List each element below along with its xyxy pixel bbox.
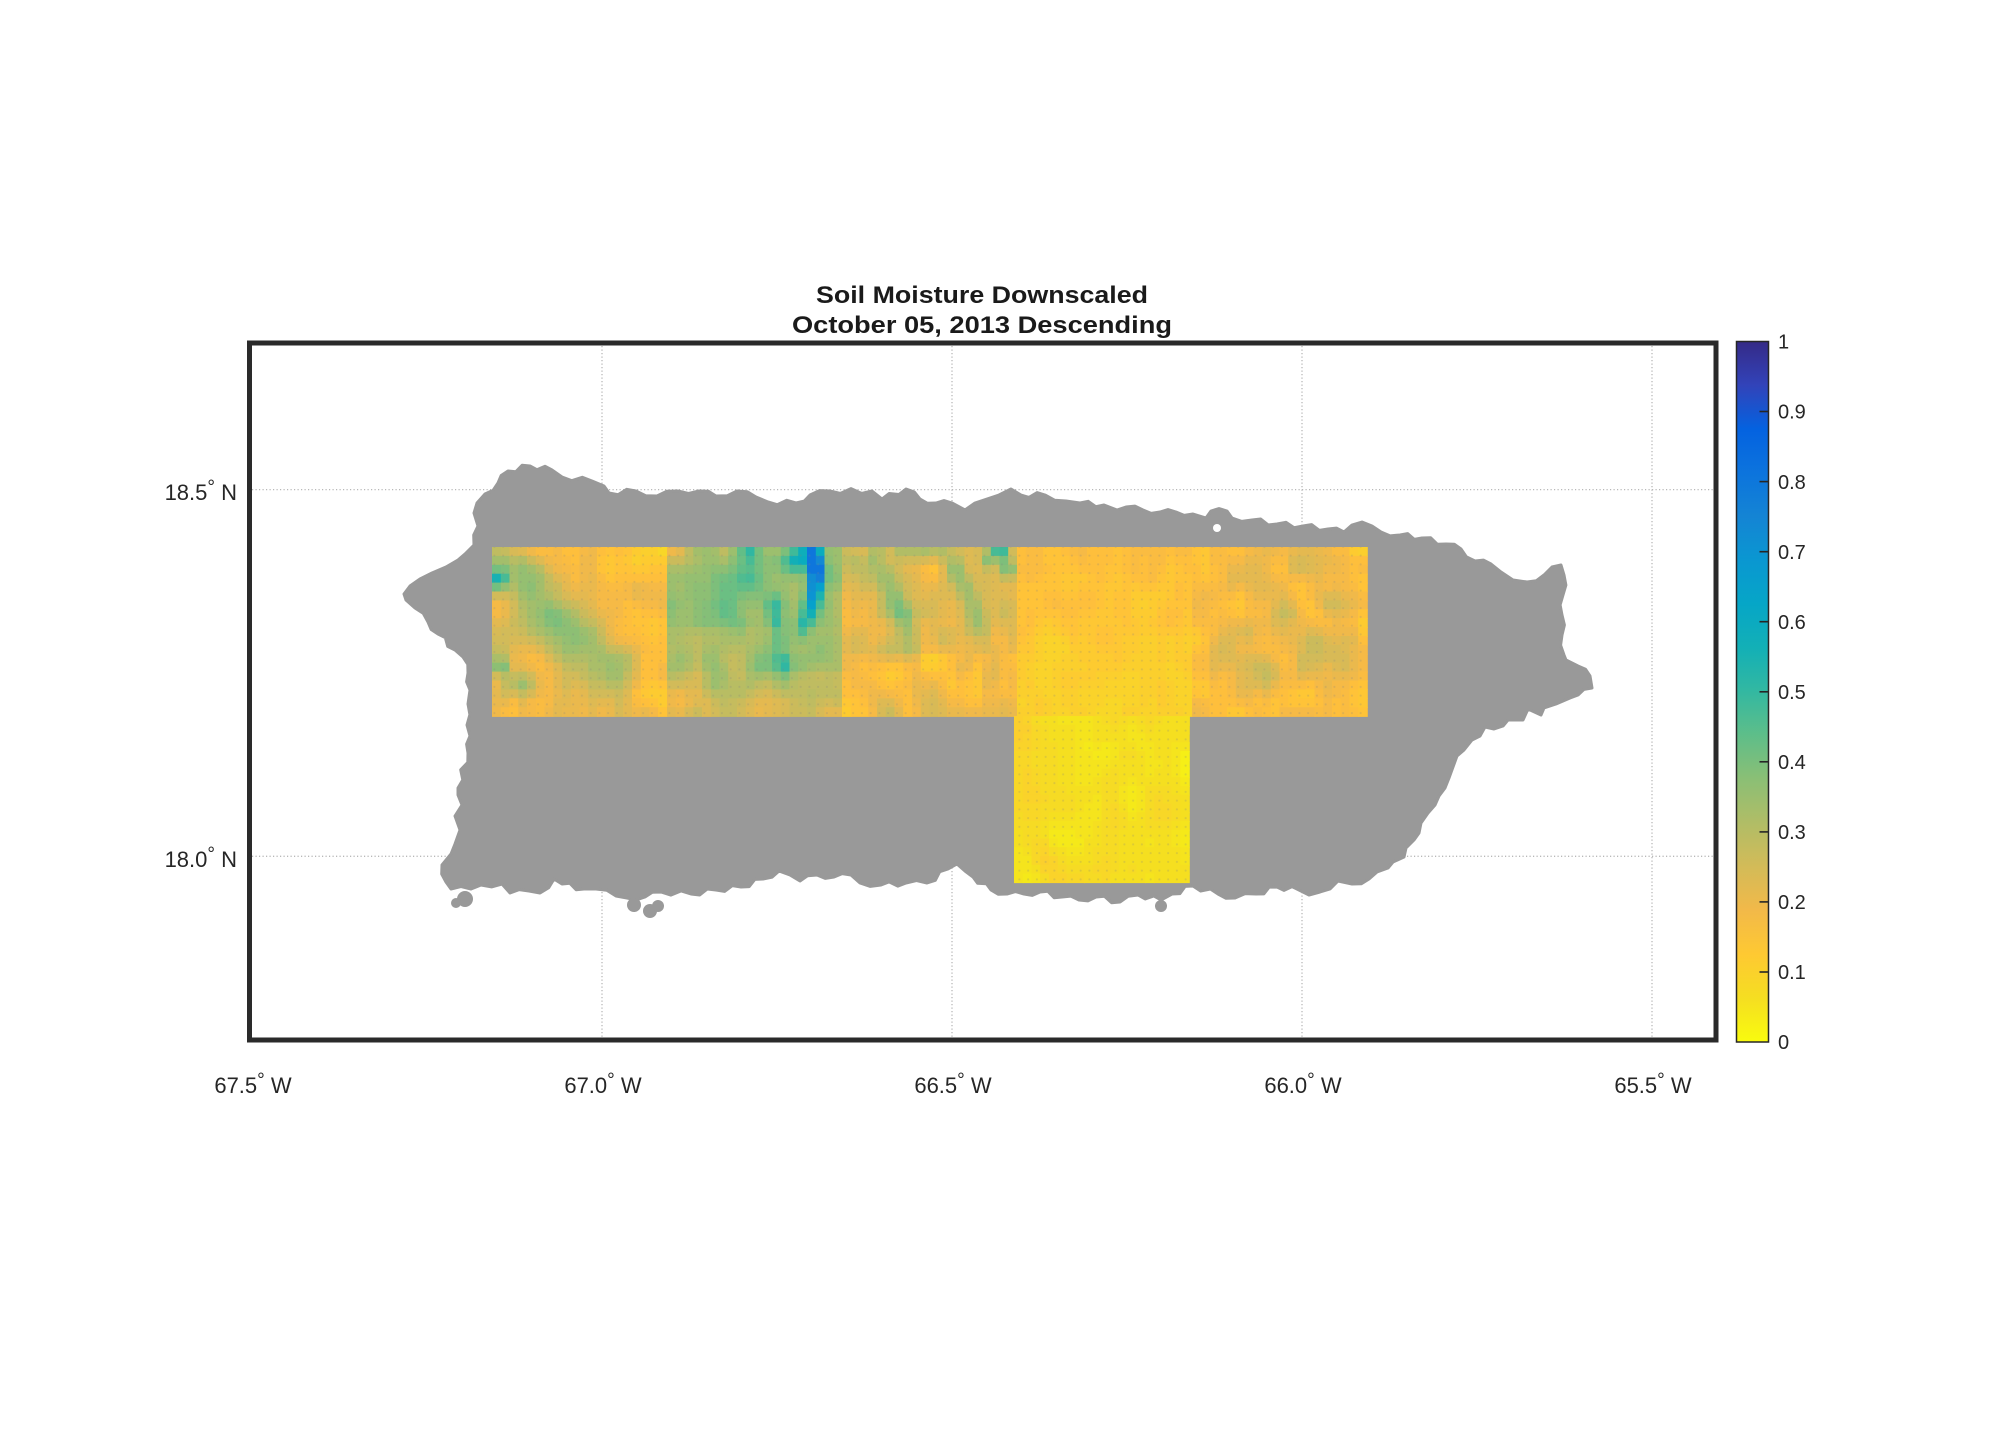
svg-text:1: 1 [1778,332,1789,354]
svg-text:0.9: 0.9 [1778,402,1806,424]
svg-text:66.0° W: 66.0° W [1264,1070,1342,1098]
svg-text:0.5: 0.5 [1778,682,1806,704]
svg-text:18.0° N: 18.0° N [165,844,237,872]
svg-text:67.5° W: 67.5° W [214,1070,292,1098]
svg-text:65.5° W: 65.5° W [1614,1070,1692,1098]
svg-text:0.8: 0.8 [1778,472,1806,494]
svg-text:18.5° N: 18.5° N [165,477,237,505]
svg-text:0.6: 0.6 [1778,612,1806,634]
svg-text:0.3: 0.3 [1778,822,1806,844]
svg-text:66.5° W: 66.5° W [914,1070,992,1098]
svg-text:0.1: 0.1 [1778,962,1806,984]
svg-text:Soil Moisture Downscaled: Soil Moisture Downscaled [816,282,1148,309]
svg-text:67.0° W: 67.0° W [564,1070,642,1098]
svg-text:0.4: 0.4 [1778,752,1806,774]
svg-text:October 05, 2013 Descending: October 05, 2013 Descending [792,312,1172,339]
svg-text:0.2: 0.2 [1778,892,1806,914]
svg-text:0.7: 0.7 [1778,542,1806,564]
svg-text:0: 0 [1778,1032,1789,1054]
